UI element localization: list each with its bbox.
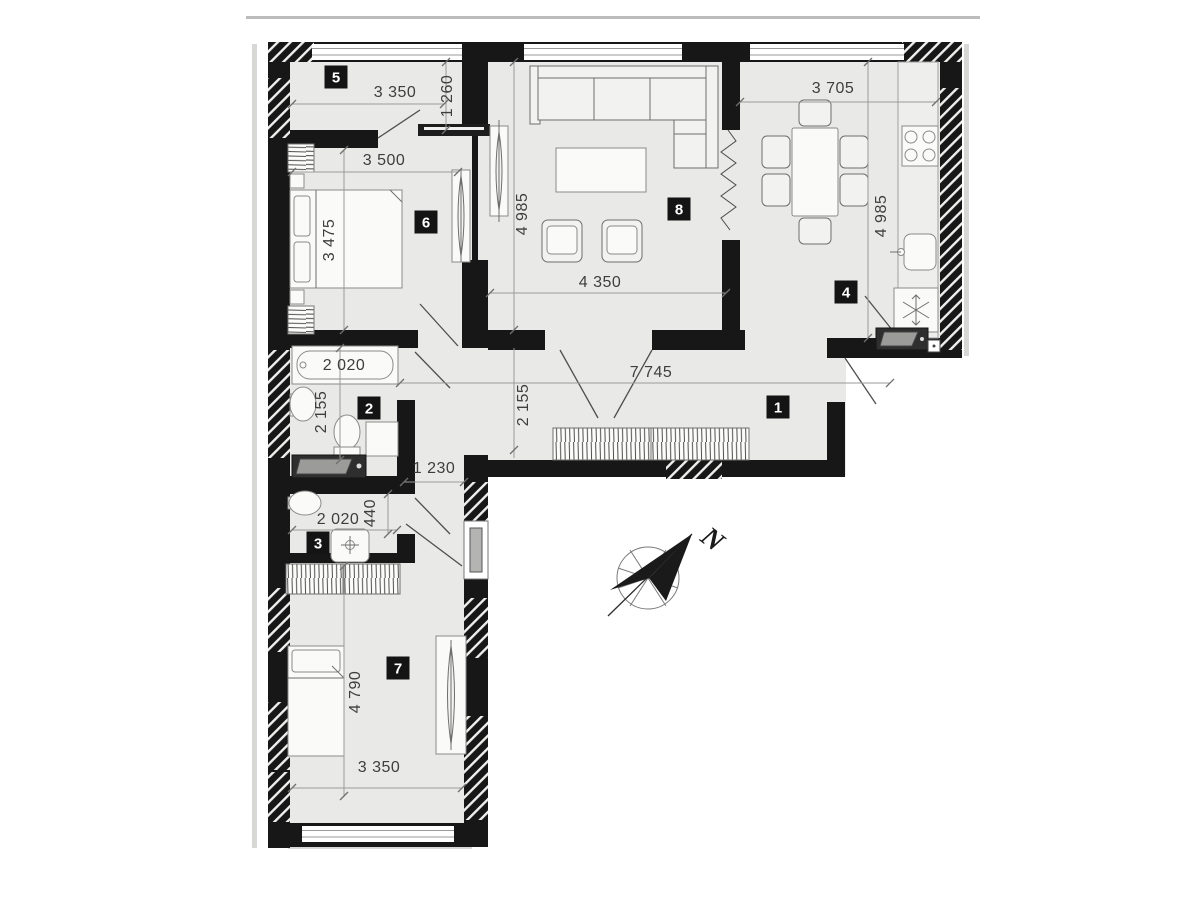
window-corridor-small [464, 521, 488, 579]
room-badge-4: 4 [835, 281, 858, 304]
svg-text:4: 4 [842, 285, 851, 302]
armchair-icon [542, 220, 582, 262]
left-outer-edge [252, 44, 257, 848]
wall-outlet-box [928, 340, 940, 352]
dimension-label: 7 745 [630, 364, 673, 381]
dimension-label: 3 500 [363, 152, 406, 169]
coffee-table-icon [556, 148, 646, 192]
floor-plan: 3 350 1 260 3 500 3 475 4 985 4 350 3 70… [0, 0, 1192, 900]
window-balcony [312, 44, 462, 60]
dimension-label: 4 985 [873, 195, 890, 238]
svg-text:2: 2 [365, 401, 373, 418]
dimension-label: 3 475 [321, 219, 338, 262]
wardrobe-icon [286, 564, 400, 594]
armchair-icon [602, 220, 642, 262]
dimension-label: 3 350 [358, 759, 401, 776]
room-badge-5: 5 [325, 66, 348, 89]
fridge-snowflake-icon [894, 288, 938, 332]
dimension-label: 3 350 [374, 84, 417, 101]
dimension-label: 4 350 [579, 274, 622, 291]
hallway-furniture [553, 428, 749, 460]
window-living-room [524, 44, 682, 60]
svg-text:6: 6 [422, 215, 430, 232]
right-outer-edge [964, 44, 969, 356]
page-top-border [246, 16, 980, 19]
svg-text:7: 7 [394, 661, 402, 678]
balcony-door-sill [418, 124, 490, 136]
dimension-label: 2 155 [515, 384, 532, 427]
svg-text:5: 5 [332, 70, 340, 87]
svg-text:8: 8 [675, 202, 683, 219]
room-badge-1: 1 [767, 396, 790, 419]
window-kitchen [750, 44, 904, 60]
dimension-label: 4 790 [347, 671, 364, 714]
tall-cabinet-icon [452, 170, 470, 262]
dimension-label: 440 [362, 499, 379, 527]
svg-text:1: 1 [774, 400, 782, 417]
dimension-label: 3 705 [812, 80, 855, 97]
stove-icon [902, 126, 938, 166]
room-badge-2: 2 [358, 397, 381, 420]
compass-icon: N [608, 520, 731, 616]
dimension-label: 1 230 [413, 460, 456, 477]
tall-cabinet-icon [436, 636, 466, 754]
window-bedroom-2 [302, 826, 454, 842]
bed-icon [290, 174, 402, 304]
washing-machine-icon [292, 455, 366, 478]
dimension-label: 2 020 [323, 357, 366, 374]
dimension-label: 4 985 [514, 193, 531, 236]
bath-cabinet-icon [366, 422, 398, 456]
hall-wardrobe-icon [553, 428, 749, 460]
compass-north-label: N [694, 520, 731, 559]
dimension-label: 1 260 [439, 75, 456, 118]
svg-text:3: 3 [314, 536, 322, 553]
room-badge-7: 7 [387, 657, 410, 680]
wardrobe-icon [288, 144, 314, 172]
shower-icon [331, 529, 369, 562]
wardrobe-icon [288, 306, 314, 334]
dimension-label: 2 155 [313, 391, 330, 434]
room-badge-6: 6 [415, 211, 438, 234]
dimension-label: 2 020 [317, 511, 360, 528]
kitchen-appliance-icon [876, 328, 928, 350]
toilet-icon [334, 415, 360, 457]
room-badge-3: 3 [307, 532, 330, 555]
entrance-door-swing [845, 358, 876, 404]
room-badge-8: 8 [668, 198, 691, 221]
tall-cabinet-icon [490, 120, 508, 222]
bed-icon [288, 646, 344, 756]
